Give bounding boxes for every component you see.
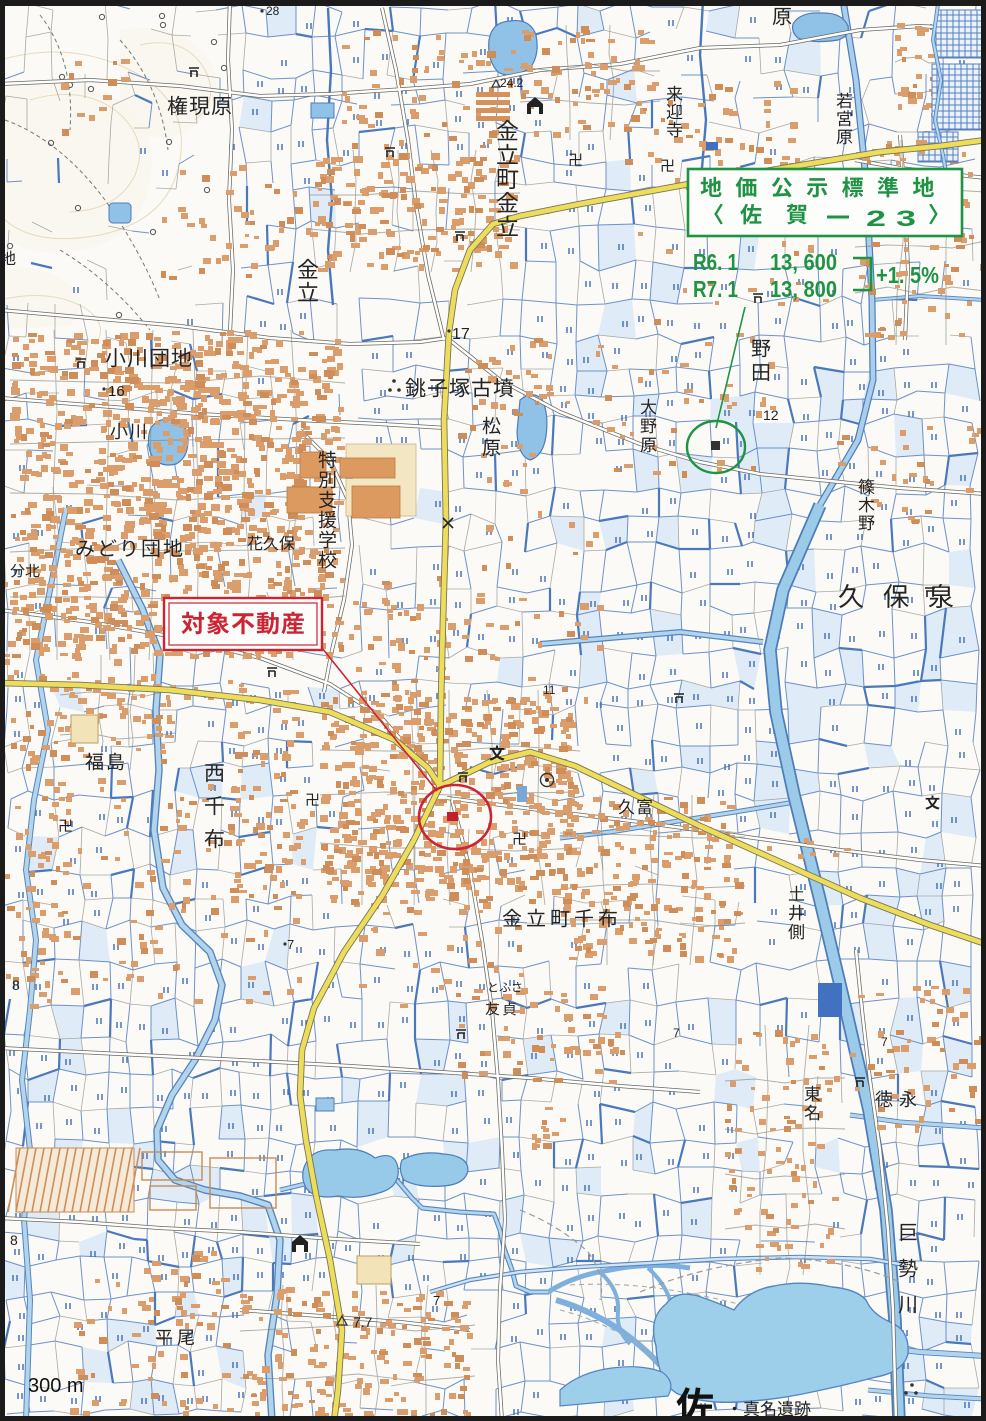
svg-text:2 3: 2 3 xyxy=(866,206,916,231)
svg-text:7: 7 xyxy=(433,1293,440,1308)
svg-text:24.2: 24.2 xyxy=(500,76,524,90)
svg-text:8: 8 xyxy=(10,1232,18,1248)
svg-text:+1. 5%: +1. 5% xyxy=(876,262,939,288)
svg-text:7: 7 xyxy=(287,937,294,952)
svg-text:13, 600: 13, 600 xyxy=(770,249,837,275)
svg-text:28: 28 xyxy=(266,4,280,18)
svg-text:16: 16 xyxy=(108,383,125,400)
svg-text:17: 17 xyxy=(452,326,470,343)
svg-text:R7. 1: R7. 1 xyxy=(693,276,738,302)
svg-text:13, 800: 13, 800 xyxy=(770,276,837,302)
svg-text:8: 8 xyxy=(12,977,20,993)
svg-text:300 m: 300 m xyxy=(28,1375,84,1397)
svg-text:R6. 1: R6. 1 xyxy=(693,249,738,275)
svg-text:7: 7 xyxy=(673,1026,680,1040)
svg-text:11: 11 xyxy=(543,683,556,697)
svg-text:12: 12 xyxy=(763,407,779,423)
svg-text:7.7: 7.7 xyxy=(353,1314,373,1330)
svg-text:7: 7 xyxy=(881,1035,888,1049)
